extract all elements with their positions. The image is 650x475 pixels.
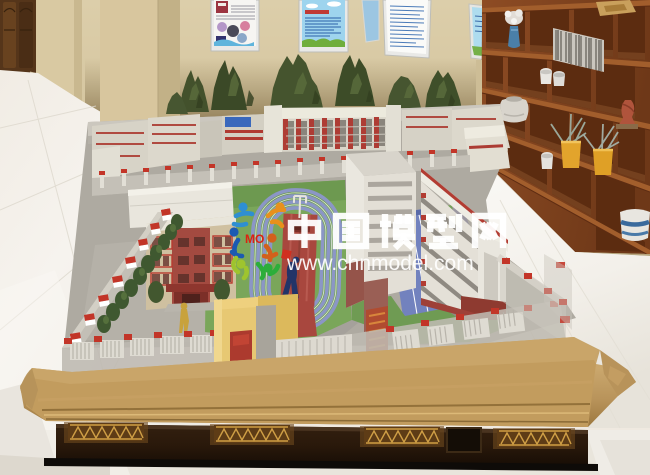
svg-text:www.chnmodel.com: www.chnmodel.com <box>286 252 474 275</box>
svg-text:MO: MO <box>245 232 264 246</box>
